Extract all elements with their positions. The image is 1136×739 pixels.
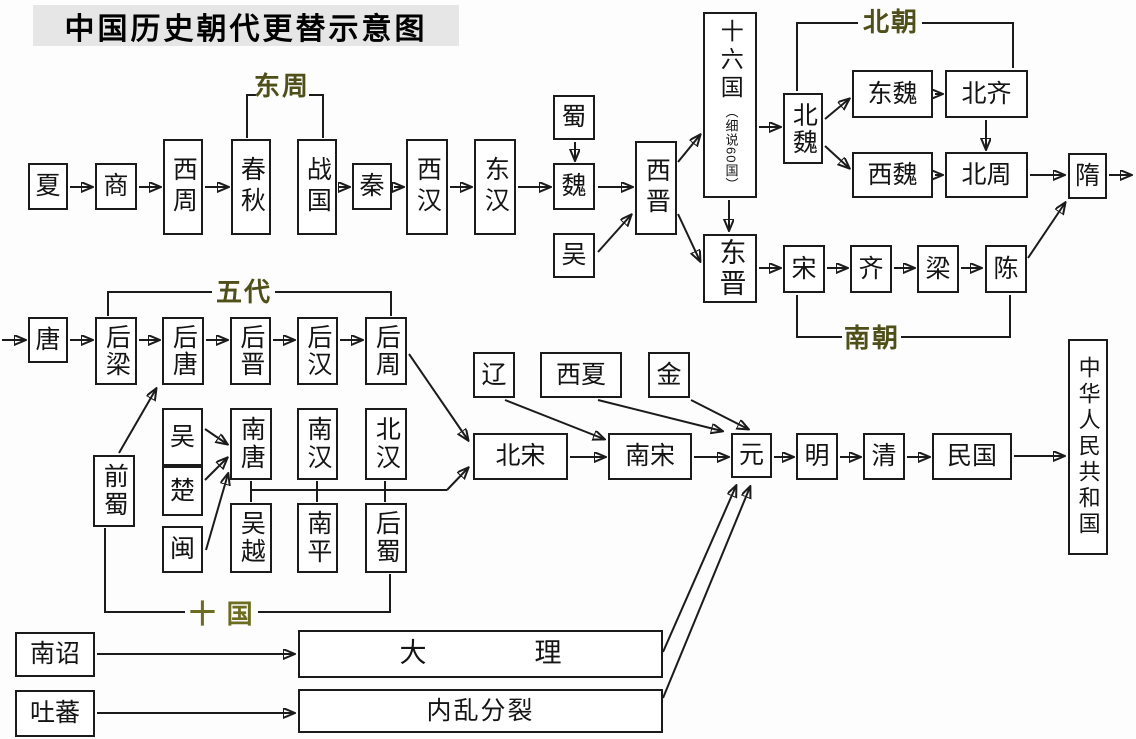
node-nansong: 南宋 xyxy=(608,433,692,480)
node-xizhou: 西周 xyxy=(163,139,203,235)
dynasty-flowchart: 中国历史朝代更替示意图 东周 北朝 南朝 五代 十 国 夏 商 西周 春秋 战国… xyxy=(0,0,1136,739)
node-shu: 蜀 xyxy=(553,95,595,140)
arrow-neiluan-yuan xyxy=(663,487,750,698)
shiguo-rail xyxy=(251,481,447,502)
node-wei: 魏 xyxy=(553,163,595,210)
node-neiluan: 内乱分裂 xyxy=(298,689,663,733)
node-wu-state: 吴 xyxy=(162,408,203,466)
node-yuan: 元 xyxy=(731,433,772,478)
node-xixia: 西夏 xyxy=(540,352,622,398)
arrow-min-nantang xyxy=(206,474,228,550)
node-chu: 楚 xyxy=(162,466,203,516)
node-beizhou: 北周 xyxy=(945,152,1028,198)
arrow-shiguo-beisong xyxy=(447,468,468,490)
node-song: 宋 xyxy=(783,245,825,293)
node-minguo: 民国 xyxy=(932,433,1012,480)
group-label-dongzhou: 东周 xyxy=(252,68,312,100)
arrow-beiwei-dongwei xyxy=(825,99,849,119)
arrow-houzhou-beisong xyxy=(409,354,468,440)
node-liao: 辽 xyxy=(473,352,515,398)
node-qing: 清 xyxy=(863,433,905,480)
group-label-nanchao: 南朝 xyxy=(841,320,903,352)
arrow-xixia-yuan xyxy=(598,400,722,431)
node-dongwei: 东魏 xyxy=(852,70,933,118)
arrow-xijin-shiliuguo xyxy=(678,135,700,162)
arrow-chen-sui xyxy=(1028,203,1065,258)
node-beiwei: 北魏 xyxy=(783,93,823,164)
node-houtang: 后唐 xyxy=(162,317,204,385)
group-label-shiguo: 十 国 xyxy=(184,596,260,628)
node-chunqiu: 春秋 xyxy=(231,139,271,235)
diagram-title: 中国历史朝代更替示意图 xyxy=(33,5,459,46)
node-jin: 金 xyxy=(648,352,690,398)
node-liang: 梁 xyxy=(917,245,959,293)
node-chen: 陈 xyxy=(985,245,1027,293)
node-qi: 齐 xyxy=(850,245,892,293)
node-shiliuguo: 十六国（细说60国） xyxy=(703,12,757,198)
node-nanhan: 南汉 xyxy=(297,408,338,480)
node-nanping: 南平 xyxy=(297,503,338,573)
node-houliang: 后梁 xyxy=(95,317,137,385)
node-nanzhao: 南诏 xyxy=(15,632,95,677)
shiliuguo-label: 十六国 xyxy=(717,19,743,103)
node-tang: 唐 xyxy=(28,317,68,363)
node-shang: 商 xyxy=(95,163,137,210)
node-xijin: 西晋 xyxy=(635,141,677,235)
node-donghan: 东汉 xyxy=(474,139,516,235)
node-min: 闽 xyxy=(162,526,203,573)
node-beisong: 北宋 xyxy=(473,433,568,480)
node-xihan: 西汉 xyxy=(406,139,448,235)
node-sui: 隋 xyxy=(1068,153,1107,199)
arrow-dali-yuan xyxy=(663,486,736,652)
node-beiqi: 北齐 xyxy=(945,70,1028,118)
node-wuyue: 吴越 xyxy=(230,503,272,573)
node-houhan: 后汉 xyxy=(297,317,338,385)
node-xiwei: 西魏 xyxy=(852,152,933,198)
node-ming: 明 xyxy=(796,433,838,480)
node-nantang: 南唐 xyxy=(230,408,272,480)
node-xia: 夏 xyxy=(28,163,68,210)
group-label-beichao: 北朝 xyxy=(858,4,924,36)
node-houzhou: 后周 xyxy=(365,317,407,385)
node-tubo: 吐蕃 xyxy=(15,690,95,737)
node-zhanguo: 战国 xyxy=(297,139,337,235)
arrow-wu-xijin xyxy=(598,215,631,252)
nanchao-bracket xyxy=(797,295,1010,337)
arrow-qianshu-houtang xyxy=(119,389,156,453)
arrow-chu-nantang xyxy=(205,458,227,480)
node-dali: 大 理 xyxy=(298,630,663,678)
arrow-xijin-dongjin xyxy=(678,214,700,261)
arrow-beiwei-xiwei xyxy=(825,146,849,168)
group-label-wudai: 五代 xyxy=(211,274,277,306)
node-houshu: 后蜀 xyxy=(365,503,407,573)
node-dongjin: 东晋 xyxy=(703,234,757,303)
arrow-wu-nantang xyxy=(205,429,227,444)
node-wu: 吴 xyxy=(553,233,595,278)
node-houjin: 后晋 xyxy=(230,317,271,385)
node-beihan: 北汉 xyxy=(365,408,407,480)
node-qianshu: 前蜀 xyxy=(93,455,135,527)
node-qin: 秦 xyxy=(352,163,392,210)
shiliuguo-note: （细说60国） xyxy=(723,105,738,191)
node-prc: 中华人民共和国 xyxy=(1068,339,1108,555)
